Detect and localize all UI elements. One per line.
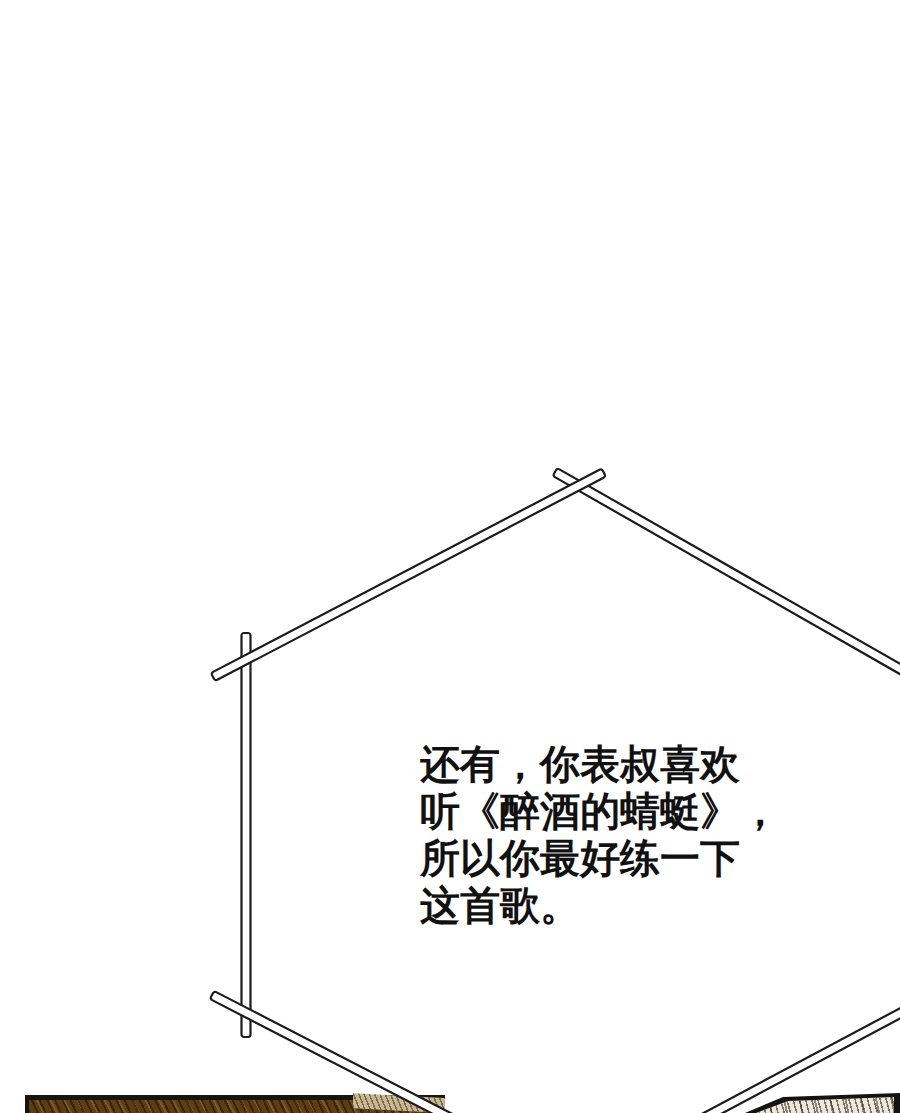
- speech-bubble-stick-frame: [0, 0, 900, 1113]
- dialogue-line: 所以你最好练一下: [420, 835, 765, 882]
- speech-bubble-text: 还有，你表叔喜欢 听《醉酒的蜻蜓》， 所以你最好练一下 这首歌。: [420, 741, 765, 929]
- stick-upper-left: [211, 469, 606, 681]
- stick-bottom-right: [683, 996, 900, 1113]
- dialogue-line: 听《醉酒的蜻蜓》，: [420, 788, 765, 835]
- stick-left-vertical: [242, 633, 251, 1037]
- dialogue-line: 这首歌。: [420, 882, 765, 929]
- comic-page: 还有，你表叔喜欢 听《醉酒的蜻蜓》， 所以你最好练一下 这首歌。: [0, 0, 900, 1113]
- dialogue-line: 还有，你表叔喜欢: [420, 741, 765, 788]
- stick-upper-right: [553, 468, 900, 693]
- stick-bottom-left: [210, 991, 473, 1113]
